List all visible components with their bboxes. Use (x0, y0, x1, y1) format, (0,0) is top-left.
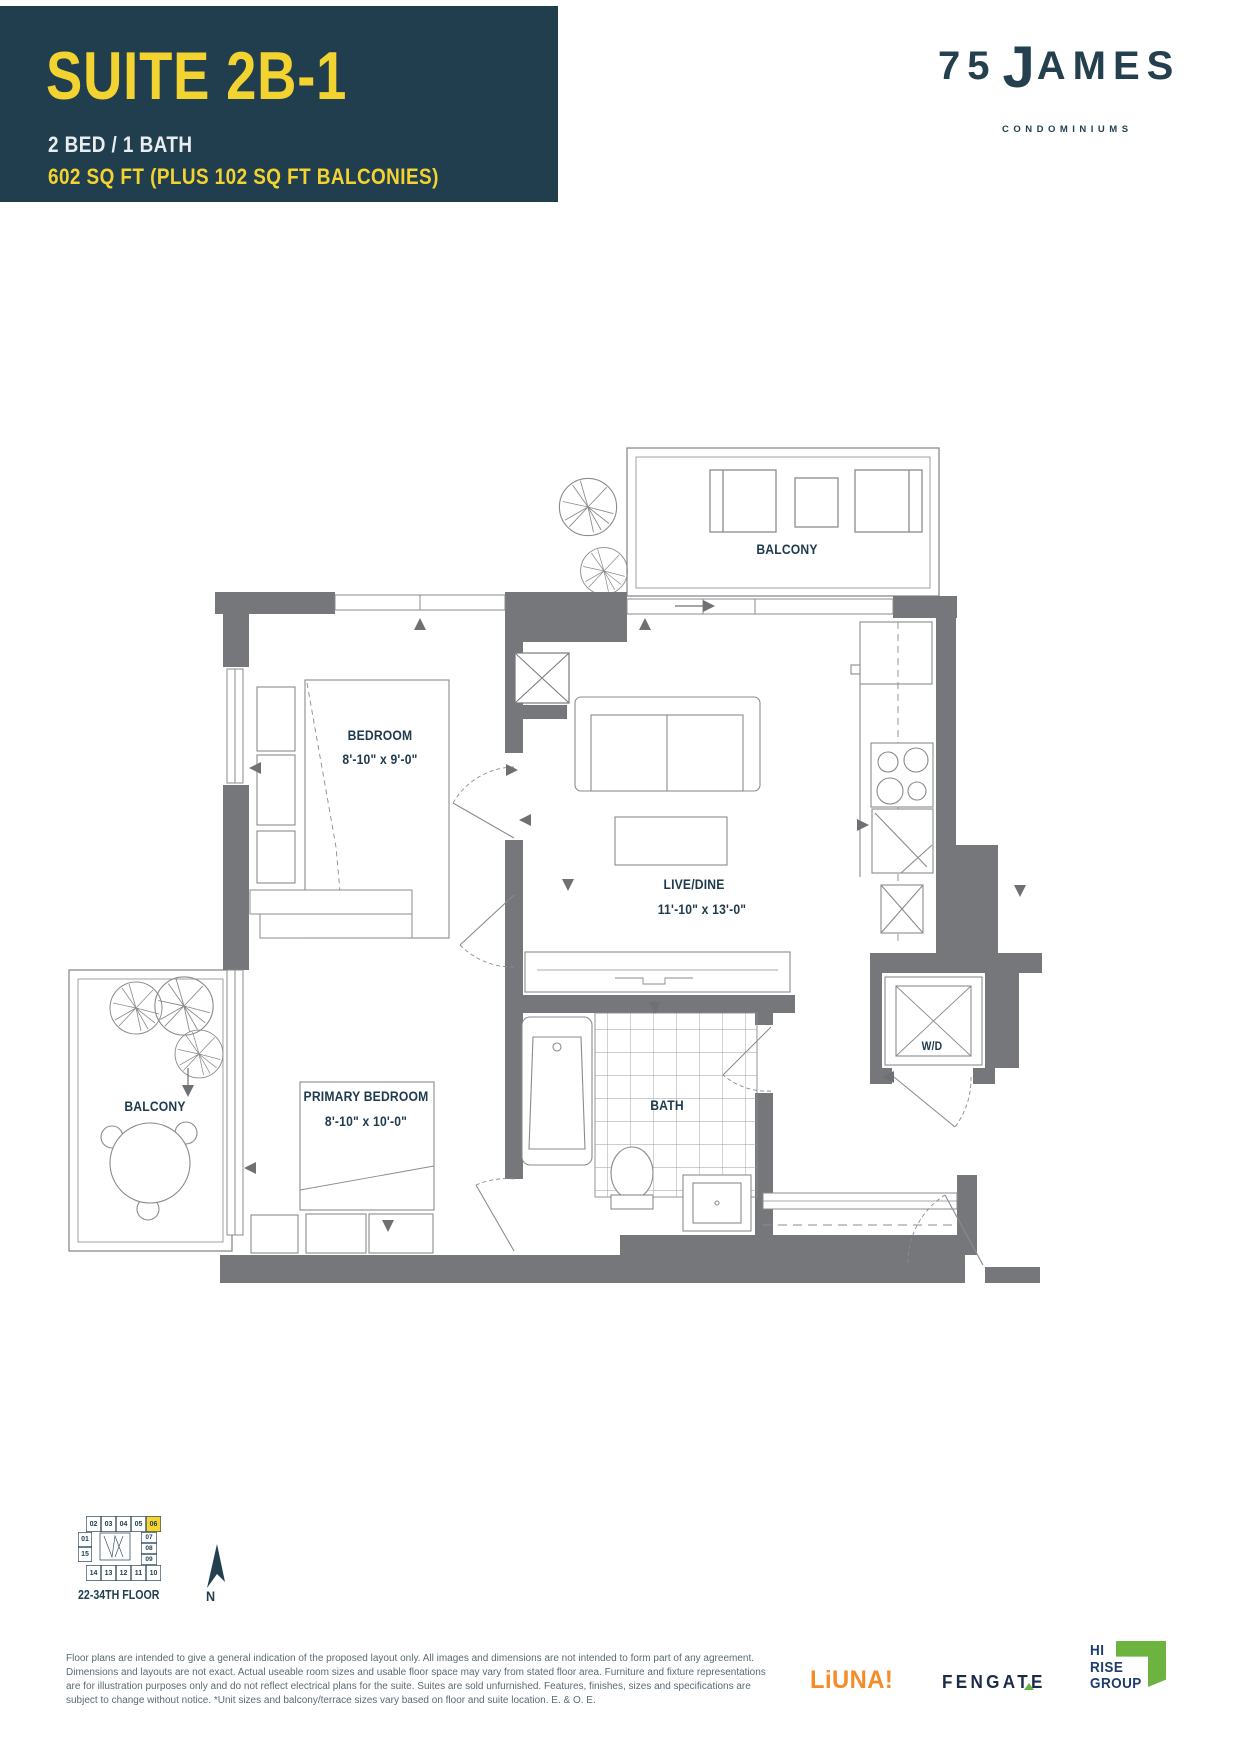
label-wd: W/D (922, 1041, 943, 1053)
label-balcony-left: BALCONY (124, 1099, 185, 1114)
key-plan-suite: 14 (86, 1565, 101, 1581)
bedroom-closet (250, 890, 412, 938)
balcony-top-outline (627, 448, 939, 596)
area-subtitle: 602 SQ FT (PLUS 102 SQ FT BALCONIES) (48, 164, 439, 190)
north-label: N (206, 1588, 215, 1604)
key-plan-caption: 22-34TH FLOOR (78, 1588, 159, 1602)
north-arrow-icon (203, 1542, 231, 1590)
label-bedroom-dims: 8'-10" x 9'-0" (342, 752, 417, 767)
brand-number: 75 (938, 46, 997, 86)
brand-logo: 75 J AMES CONDOMINIUMS (938, 46, 1178, 87)
label-bath: BATH (650, 1098, 684, 1113)
fengate-triangle-icon (1024, 1683, 1034, 1690)
label-bedroom: BEDROOM (348, 728, 413, 743)
key-plan: 02 03 04 05 06 01 15 07 08 09 14 13 12 1… (78, 1516, 161, 1581)
key-plan-suite: 05 (131, 1516, 146, 1532)
brand-tagline: CONDOMINIUMS (1002, 124, 1133, 135)
disclaimer-line: Floor plans are intended to give a gener… (66, 1652, 766, 1666)
disclaimer-line: subject to change without notice. *Unit … (66, 1694, 766, 1708)
key-plan-suite: 09 (141, 1554, 157, 1565)
disclaimer-line: are for illustration purposes only and d… (66, 1680, 766, 1694)
tree-icon (559, 478, 616, 535)
hirise-logo: HI RISE GROUP (1090, 1643, 1142, 1693)
balcony-table-set (101, 1122, 197, 1220)
bed-bath-subtitle: 2 BED / 1 BATH (48, 132, 192, 158)
liuna-logo: LiUNA! (810, 1666, 893, 1695)
key-plan-suite: 04 (116, 1516, 131, 1532)
hirise-line: HI (1090, 1643, 1142, 1660)
key-plan-suite: 02 (86, 1516, 101, 1532)
key-plan-suite: 11 (131, 1565, 146, 1581)
label-live-dine-dims: 11'-10" x 13'-0" (658, 902, 746, 917)
floor-plan (55, 385, 1060, 1300)
key-plan-core (92, 1532, 139, 1562)
key-plan-suite: 12 (116, 1565, 131, 1581)
hirise-line: GROUP (1090, 1676, 1142, 1693)
key-plan-suite: 03 (101, 1516, 116, 1532)
key-plan-top-row: 02 03 04 05 06 (86, 1516, 161, 1532)
key-plan-suite: 08 (141, 1543, 157, 1554)
shaft-box (515, 653, 569, 703)
tree-icon (155, 977, 213, 1035)
key-plan-suite-highlighted: 06 (146, 1516, 161, 1532)
key-plan-suite: 10 (146, 1565, 161, 1581)
label-primary-bedroom: PRIMARY BEDROOM (304, 1089, 429, 1104)
header-block: SUITE 2B-1 2 BED / 1 BATH 602 SQ FT (PLU… (0, 6, 558, 202)
label-live-dine: LIVE/DINE (663, 877, 724, 892)
living-furniture (525, 697, 790, 992)
key-plan-suite: 15 (78, 1547, 92, 1562)
page-title: SUITE 2B-1 (46, 42, 347, 110)
hirise-line: RISE (1090, 1660, 1142, 1677)
brand-rest: AMES (1037, 46, 1181, 86)
tree-icon (581, 548, 628, 595)
key-plan-suite: 13 (101, 1565, 116, 1581)
brand-j: J (1003, 48, 1035, 89)
tree-icon (175, 1030, 223, 1078)
key-plan-suite: 07 (141, 1532, 157, 1543)
bath-fixtures (522, 1013, 757, 1231)
tree-icon (110, 982, 162, 1034)
key-plan-bottom-row: 14 13 12 11 10 (86, 1565, 161, 1581)
label-primary-bedroom-dims: 8'-10" x 10'-0" (325, 1114, 407, 1129)
kitchen-fixtures (851, 622, 933, 945)
primary-bedroom-furniture (251, 1082, 434, 1253)
key-plan-suite: 01 (78, 1532, 92, 1547)
key-plan-middle-row: 01 15 07 08 09 (78, 1532, 161, 1565)
disclaimer-line: Dimensions and layouts are not exact. Ac… (66, 1666, 766, 1680)
label-balcony-top: BALCONY (756, 542, 817, 557)
disclaimer: Floor plans are intended to give a gener… (66, 1652, 766, 1708)
